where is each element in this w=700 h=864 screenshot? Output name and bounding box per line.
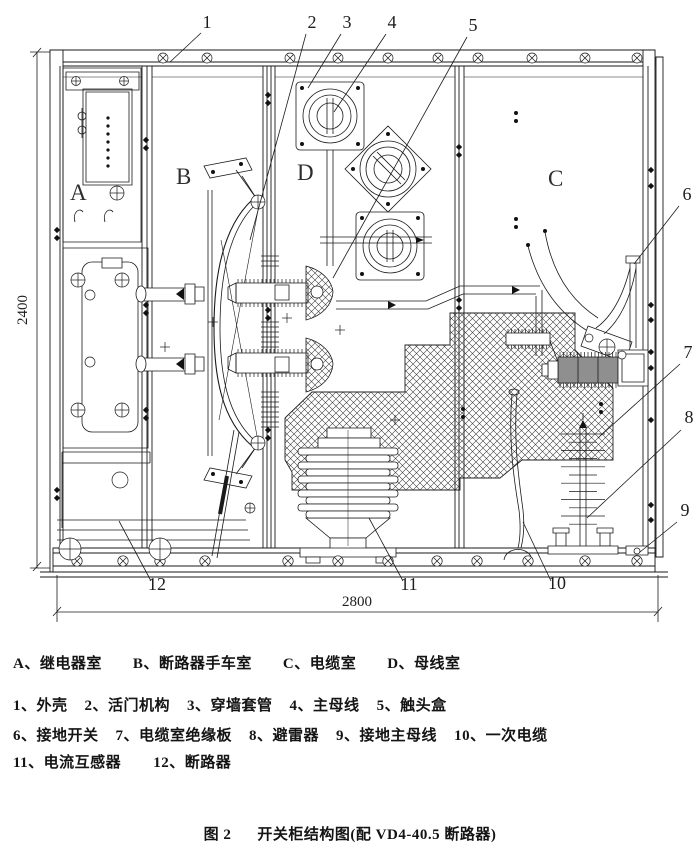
compartment-label-a: A: [70, 180, 87, 205]
callout-number-6: 6: [683, 184, 692, 204]
callout-number-12: 12: [148, 574, 166, 594]
legend-item: C、电缆室: [283, 652, 356, 673]
switchgear-structure-drawing: ABDC12345678910111224002800: [0, 0, 700, 636]
callout-number-9: 9: [681, 500, 690, 520]
legend-parts-3: 11、电流互感器12、断路器: [13, 751, 231, 772]
callout-number-8: 8: [685, 407, 694, 427]
legend-item: 4、主母线: [290, 694, 360, 715]
compartment-label-c: C: [548, 166, 563, 191]
contact-box: [228, 338, 333, 392]
compartment-label-b: B: [176, 164, 191, 189]
legend-item: 11、电流互感器: [13, 751, 121, 772]
legend-parts-2: 6、接地开关7、电缆室绝缘板8、避雷器9、接地主母线10、一次电缆: [13, 724, 548, 745]
callout-number-7: 7: [684, 342, 693, 362]
legend-item: 9、接地主母线: [336, 724, 437, 745]
callout-number-4: 4: [388, 12, 397, 32]
callout-number-3: 3: [343, 12, 352, 32]
current-transformer: [298, 428, 398, 563]
dimension-height: 2400: [15, 295, 31, 325]
legend-item: 6、接地开关: [13, 724, 99, 745]
legend-item: 3、穿墙套管: [187, 694, 273, 715]
contact-box: [228, 266, 333, 320]
callout-number-5: 5: [469, 15, 478, 35]
legend-item: B、断路器手车室: [133, 652, 252, 673]
figure-title: 开关柜结构图(配 VD4-40.5 断路器): [257, 823, 496, 844]
compartment-label-d: D: [297, 160, 314, 185]
legend-item: D、母线室: [387, 652, 460, 673]
legend-item: 5、触头盒: [377, 694, 447, 715]
dimension-width: 2800: [342, 594, 372, 610]
legend-item: 1、外壳: [13, 694, 68, 715]
switchgear-structure-figure: ABDC12345678910111224002800 A、继电器室B、断路器手…: [0, 0, 700, 864]
breaker-truck: [57, 430, 250, 558]
wall-bushing: [296, 82, 364, 150]
legend-item: 10、一次电缆: [454, 724, 548, 745]
door-hook-icon: [74, 210, 83, 222]
door-hook-icon: [104, 210, 113, 222]
legend-item: 7、电缆室绝缘板: [116, 724, 233, 745]
legend-parts-1: 1、外壳2、活门机构3、穿墙套管4、主母线5、触头盒: [13, 694, 447, 715]
callout-number-11: 11: [400, 574, 417, 594]
legend-item: 12、断路器: [153, 751, 231, 772]
legend-compartments: A、继电器室B、断路器手车室C、电缆室D、母线室: [13, 652, 461, 673]
legend-item: A、继电器室: [13, 652, 102, 673]
legend-item: 2、活门机构: [85, 694, 171, 715]
wall-bushing: [356, 212, 424, 280]
legend-item: 8、避雷器: [249, 724, 319, 745]
figure-caption: 图 2 开关柜结构图(配 VD4-40.5 断路器): [0, 823, 700, 844]
callout-number-2: 2: [308, 12, 317, 32]
relay-compartment: [63, 68, 204, 448]
callout-number-1: 1: [203, 12, 212, 32]
figure-number: 图 2: [204, 823, 232, 844]
shutter-mechanism: [204, 158, 260, 488]
callout-number-10: 10: [548, 573, 566, 593]
earthing-busbar-clamp: [626, 546, 648, 555]
